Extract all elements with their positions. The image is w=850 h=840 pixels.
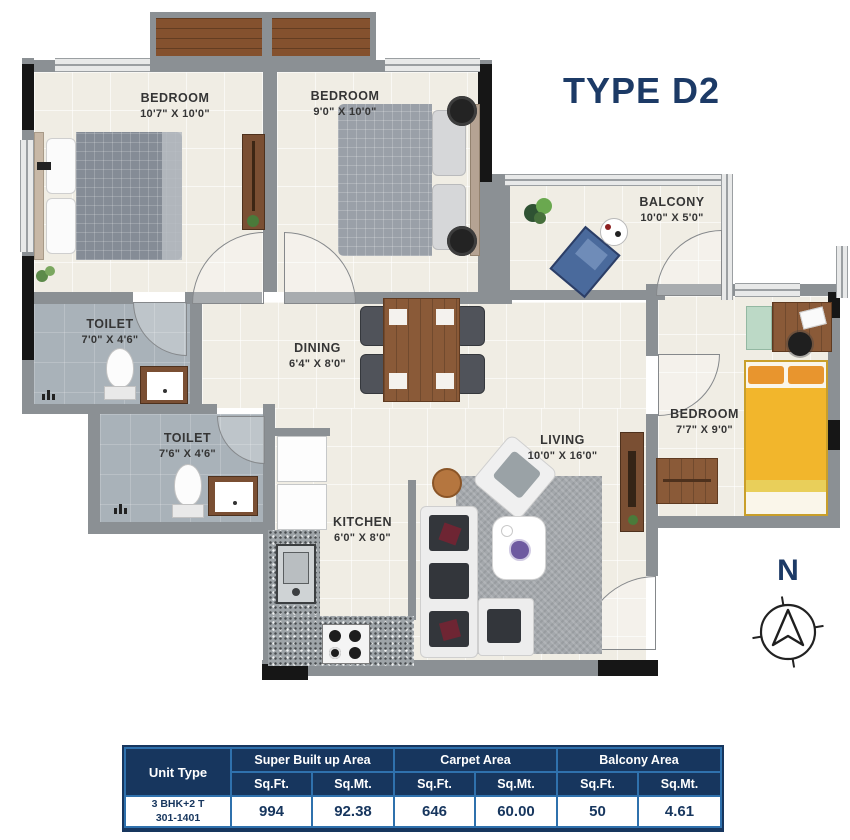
- north-label: N: [777, 554, 799, 587]
- plant-small: [36, 266, 58, 288]
- wall-segment: [22, 404, 217, 414]
- table-subheader: Sq.Ft.: [231, 772, 312, 796]
- table-header-balcony: Balcony Area: [557, 748, 721, 772]
- wall-segment: [88, 522, 275, 534]
- toilet-wc: [172, 464, 202, 518]
- shower-drain: [114, 504, 132, 514]
- coffee-table: [492, 516, 546, 580]
- sofa: [420, 506, 478, 658]
- stove-cooktop: [322, 624, 370, 664]
- wall-segment: [488, 174, 510, 300]
- wall-black-segment: [22, 256, 34, 360]
- page-title: TYPE D2: [563, 70, 720, 112]
- balcony-window-wall: [721, 174, 733, 300]
- wall-black-segment: [478, 64, 492, 182]
- side-table-round: [432, 468, 462, 498]
- wall-segment: [88, 404, 100, 534]
- wall-segment: [646, 528, 658, 576]
- table-subheader: Sq.Mt.: [312, 772, 394, 796]
- bedroom3-mat: [746, 306, 772, 350]
- dresser: [656, 458, 718, 504]
- table-cell: 60.00: [475, 796, 557, 827]
- table-cell: 92.38: [312, 796, 394, 827]
- wardrobe: [242, 134, 265, 230]
- table-subheader: Sq.Ft.: [557, 772, 638, 796]
- plant-potted: [524, 198, 554, 228]
- table-cell: 646: [394, 796, 475, 827]
- deck-divider: [262, 14, 272, 62]
- table-row: 3 BHK+2 T 301-1401 994 92.38 646 60.00 5…: [125, 796, 721, 827]
- table-subheader: Sq.Mt.: [638, 772, 721, 796]
- table-header-unit-type: Unit Type: [125, 748, 231, 796]
- washbasin-vanity: [140, 366, 188, 404]
- toilet-wc: [104, 348, 134, 400]
- window: [20, 140, 34, 252]
- table-cell: 4.61: [638, 796, 721, 827]
- dining-table: [383, 298, 460, 402]
- table-cell-unit: 3 BHK+2 T 301-1401: [125, 796, 231, 827]
- wall-black-segment: [22, 64, 34, 130]
- desk-chair: [788, 332, 812, 356]
- north-compass-icon: N: [743, 548, 838, 673]
- wall-segment: [408, 480, 416, 620]
- shower-drain: [42, 390, 60, 400]
- floorplan-page: BEDROOM10'7" X 10'0" BEDROOM9'0" X 10'0"…: [0, 0, 850, 840]
- table-subheader: Sq.Mt.: [475, 772, 557, 796]
- wall-segment: [268, 428, 330, 436]
- table-header-carpet: Carpet Area: [394, 748, 557, 772]
- kitchen-cabinet: [277, 436, 327, 482]
- table-cell: 994: [231, 796, 312, 827]
- entry-threshold: [598, 660, 658, 676]
- wall-black-segment: [262, 664, 308, 680]
- wall-black-segment: [828, 420, 840, 450]
- tv-unit: [620, 432, 644, 532]
- wall-switch: [37, 162, 51, 170]
- balcony-window-wall: [505, 174, 733, 186]
- table-cell: 50: [557, 796, 638, 827]
- window: [735, 283, 800, 297]
- table-subheader: Sq.Ft.: [394, 772, 475, 796]
- bed-double: [34, 132, 182, 260]
- sofa-chaise: [478, 598, 534, 656]
- kitchen-cabinet: [277, 484, 327, 530]
- balcony-table: [600, 218, 628, 246]
- bed-single-yellow: [744, 360, 828, 516]
- area-table: Unit Type Super Built up Area Carpet Are…: [122, 745, 724, 832]
- window: [385, 58, 480, 72]
- wall-segment: [30, 292, 133, 304]
- window: [836, 246, 848, 298]
- wall-segment: [263, 60, 277, 292]
- wall-segment: [646, 516, 838, 528]
- kitchen-sink: [276, 544, 316, 604]
- table-header-super-builtup: Super Built up Area: [231, 748, 394, 772]
- wall-segment: [190, 292, 202, 414]
- bedside-table: [447, 96, 477, 126]
- wall-segment: [646, 290, 658, 356]
- window: [55, 58, 150, 72]
- bedside-table: [447, 226, 477, 256]
- washbasin-vanity: [208, 476, 258, 516]
